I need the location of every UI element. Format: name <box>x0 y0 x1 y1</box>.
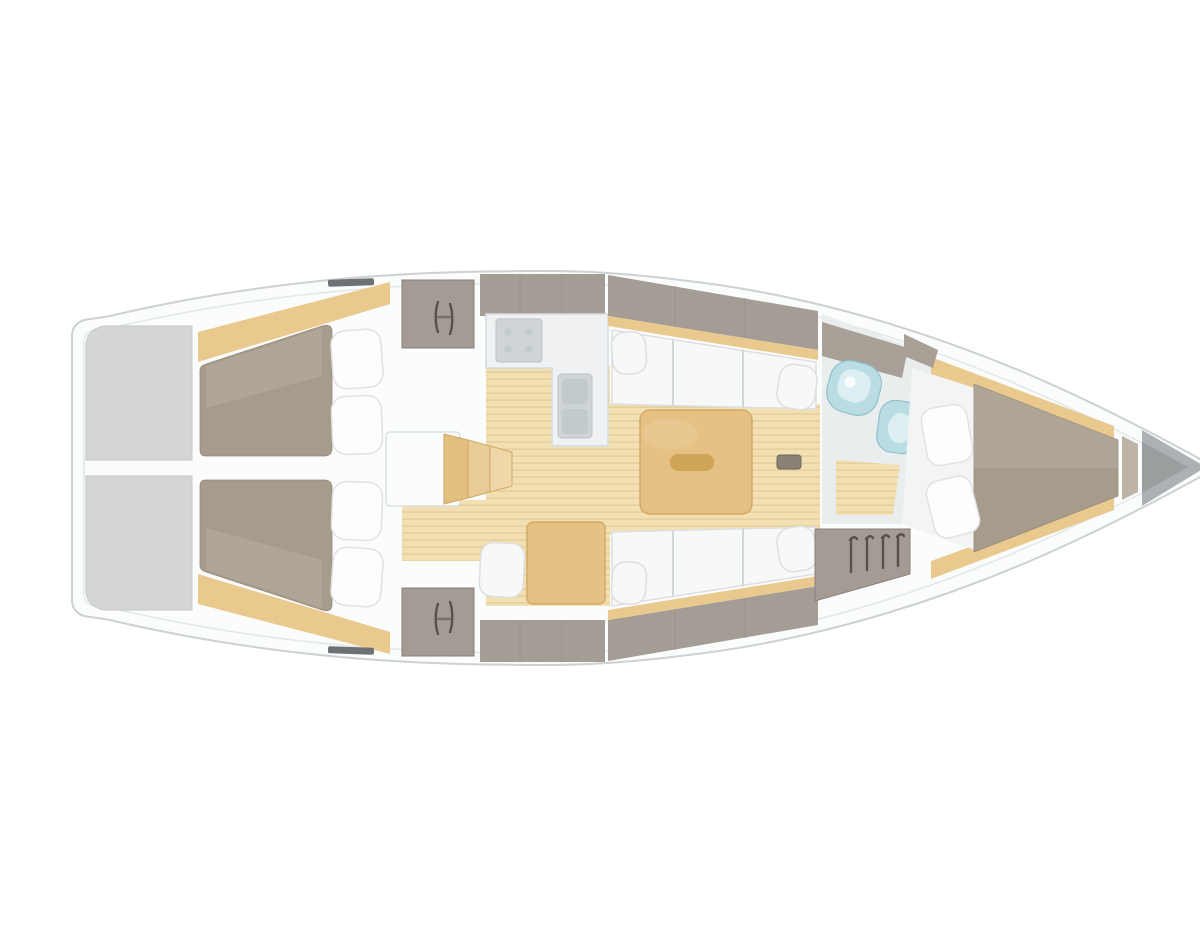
transom-locker-starboard <box>86 476 192 610</box>
transom-locker-port <box>86 326 192 460</box>
chart-table <box>527 522 605 604</box>
nav-hull-lockers <box>480 620 605 662</box>
step <box>444 434 468 504</box>
pillow <box>331 395 383 455</box>
table-handhold <box>670 454 714 471</box>
step <box>468 440 490 498</box>
yacht-floorplan <box>40 16 1200 916</box>
settee-end-bolster <box>611 331 648 375</box>
sink-icon <box>558 374 592 438</box>
companionway-landing-floor <box>402 500 486 561</box>
table-sheen <box>642 419 698 449</box>
vberth-foot-shelf <box>1122 436 1138 500</box>
pillow <box>330 328 384 389</box>
nav-station <box>479 522 605 662</box>
nav-seat <box>479 542 526 598</box>
floor-hatch <box>777 455 801 469</box>
galley-hull-lockers <box>480 274 605 316</box>
pillow <box>919 402 974 467</box>
wardrobe-locker <box>402 280 474 348</box>
stove-burner-icon <box>496 319 542 362</box>
step <box>490 446 512 492</box>
anchor-locker <box>1142 430 1200 506</box>
head-floor-teak <box>836 460 900 515</box>
settee-end-bolster <box>775 363 819 412</box>
floorplan-canvas <box>40 16 1200 916</box>
